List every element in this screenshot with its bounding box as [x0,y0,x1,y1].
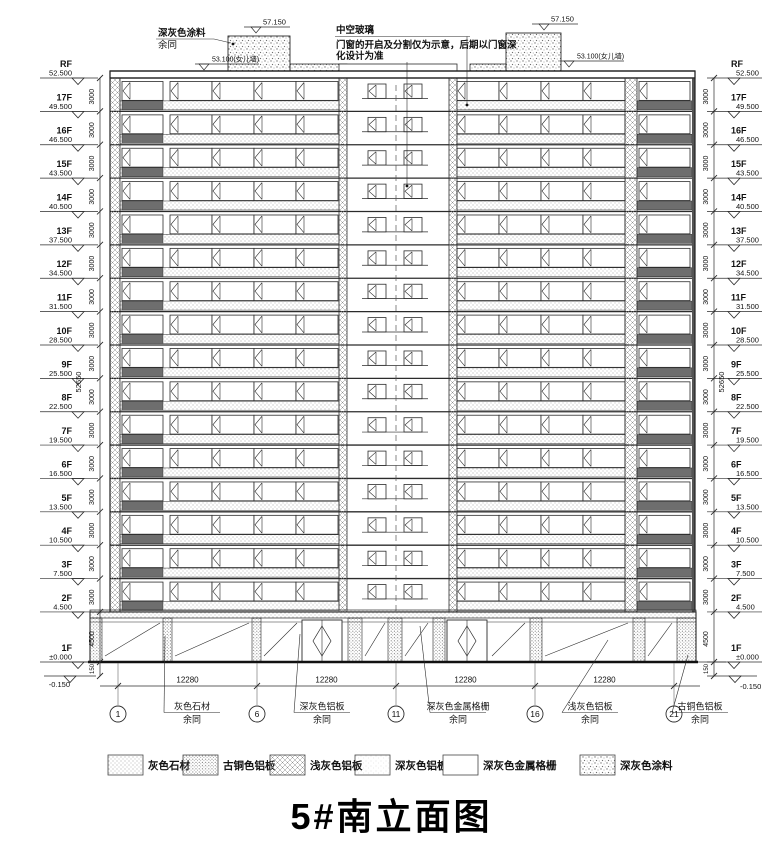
spandrel-band [457,234,625,243]
dark-sill-panel [122,134,163,143]
balcony-spandrel-dark [637,234,692,243]
material-note-line2: 余同 [449,714,467,725]
level-triangle [728,178,740,185]
materials-legend: 灰色石材古铜色铝板浅灰色铝板深灰色铝板深灰色金属格栅深灰色涂料 [108,755,673,775]
storey-dim: 3000 [703,322,710,338]
floor-elevation: 37.500 [736,235,759,244]
dark-sill-panel [122,468,163,477]
core-window [368,217,386,231]
storey-band [110,412,695,444]
storey-dim: 3000 [89,523,96,539]
floor-elevation: 4.500 [736,602,755,611]
bay-dim: 12280 [593,676,616,685]
storey-band [110,512,695,544]
core-window [368,484,386,498]
balcony-spandrel-dark [637,168,692,177]
window-cell [639,348,690,367]
bottom-dimension-line: 12280122801228012280 [100,663,700,705]
level-triangle [72,345,84,352]
floor-elevation: 7.500 [736,569,755,578]
building-facade [110,71,695,660]
storey-band [110,312,695,344]
storey-band [110,78,695,110]
floor-label: 16F [731,126,747,136]
legend-swatch-stone [108,755,143,775]
spandrel-band [457,168,625,177]
balcony-spandrel-dark [637,268,692,277]
spandrel-band [457,134,625,143]
facade-pier [339,78,347,612]
dark-sill-panel [122,501,163,510]
leader-dot [232,43,235,46]
spandrel-band [457,401,625,410]
storey-band [110,378,695,410]
window-cell [639,115,690,134]
level-triangle [72,178,84,185]
storey-dim: 3000 [89,156,96,172]
spandrel-band [457,468,625,477]
spandrel-band [457,368,625,377]
balcony-spandrel-dark [637,468,692,477]
spot-elevation-triangle [539,24,549,30]
floor-elevation: 10.500 [49,536,72,545]
below-grade-elevation: -0.150 [740,682,761,691]
storey-band [110,211,695,243]
balcony-spandrel-dark [637,101,692,110]
axis-number: 6 [255,709,260,719]
core-window [368,184,386,198]
storey-dim: 3000 [703,456,710,472]
storey-dim: 3000 [89,389,96,405]
material-note-line1: 深灰色金属格栅 [426,701,489,712]
level-triangle [72,245,84,252]
storey-dim: 3000 [703,556,710,572]
leader-dot [466,104,469,107]
total-height-dim: 52650 [74,372,83,393]
drawing-title: 5#南立面图 [0,788,783,840]
window-note-line2: 化设计为准 [336,50,384,62]
floor-elevation: 37.500 [49,235,72,244]
material-note-line1: 灰色石材 [174,701,210,712]
floor-elevation: 43.500 [736,169,759,178]
spandrel-band [457,601,625,610]
level-triangle [728,145,740,152]
floor-elevation: 49.500 [49,102,72,111]
dark-sill-panel [122,301,163,310]
level-triangle [728,245,740,252]
storey-dim: 3000 [703,122,710,138]
floor-elevation: 34.500 [49,269,72,278]
balcony-spandrel-dark [637,368,692,377]
spandrel-band [457,201,625,210]
storey-band [110,111,695,143]
floor-label: 3F [61,560,72,570]
core-window [404,484,422,498]
total-height-dim: 52650 [717,372,726,393]
level-triangle [728,612,740,619]
balcony-spandrel-dark [637,435,692,444]
glass-note-line1: 中空玻璃 [336,24,375,36]
floor-elevation: 7.500 [53,569,72,578]
floor-elevation: 25.500 [49,369,72,378]
material-note-line1: 深灰色铝板 [299,701,344,712]
storefront-pier [633,618,645,662]
floor-elevation: 22.500 [736,402,759,411]
axis-number: 11 [392,709,401,719]
leader-dot [406,185,409,188]
spot-elevation-triangle [199,64,209,70]
spot-elevation-triangle [251,27,261,33]
level-triangle [72,412,84,419]
ground-storey-dim: 4500 [89,631,96,647]
storefront-pier [677,618,696,662]
bay-dim: 12280 [176,676,199,685]
dark-sill-panel [122,234,163,243]
storefront-pier [348,618,362,662]
storey-dim: 3000 [703,289,710,305]
level-triangle [728,412,740,419]
floor-label: 7F [731,426,742,436]
balcony-spandrel-dark [637,301,692,310]
core-window [404,217,422,231]
dark-sill-panel [122,268,163,277]
storey-dim: 3000 [89,489,96,505]
dimension-column-right: 3000300030003000300030003000300030003000… [703,75,726,679]
dark-sill-panel [122,568,163,577]
level-triangle [728,278,740,285]
level-triangle [728,545,740,552]
core-window [404,551,422,565]
legend-label: 深灰色金属格栅 [483,759,557,772]
floor-label: 16F [56,126,72,136]
floor-elevation: 34.500 [736,269,759,278]
floor-elevation: 49.500 [736,102,759,111]
legend-swatch-paint [580,755,615,775]
core-window [404,318,422,332]
base-dim: 150 [90,663,96,674]
balcony-spandrel-dark [637,568,692,577]
floor-elevation: 28.500 [49,335,72,344]
level-triangle [728,662,740,669]
storey-dim: 3000 [703,356,710,372]
spandrel-band [457,501,625,510]
bay-dim: 12280 [454,676,477,685]
window-cell [639,248,690,267]
tower-elevation: 57.150 [263,18,286,27]
core-window [368,151,386,165]
floor-label: 17F [731,92,747,102]
spandrel-band [457,535,625,544]
canopy-band [90,610,696,618]
storey-dim: 3000 [703,222,710,238]
window-cell [639,215,690,234]
level-triangle [72,579,84,586]
floor-label: RF [60,59,72,69]
storey-dim: 3000 [89,189,96,205]
storey-dim: 3000 [89,589,96,605]
floor-elevation: 40.500 [49,202,72,211]
level-triangle [72,445,84,452]
storey-band [110,178,695,210]
storefront-pier [388,618,402,662]
spandrel-band [457,334,625,343]
dark-sill-panel [122,101,163,110]
level-triangle [728,478,740,485]
floor-label: 11F [731,293,747,303]
core-window [368,251,386,265]
floor-elevation: 16.500 [49,469,72,478]
storefront-pier [163,618,172,662]
floor-label: 14F [731,192,747,202]
core-window [368,518,386,532]
floor-label: 1F [731,643,742,653]
floor-elevation: 4.500 [53,602,72,611]
elevation-drawing: RF52.50017F49.50016F46.50015F43.50014F40… [0,0,783,844]
material-note-line1: 古铜色铝板 [677,701,722,712]
window-cell [639,315,690,334]
tower-elevation: 57.150 [551,15,574,24]
floor-label: 6F [731,459,742,469]
floor-label: 5F [731,493,742,503]
legend-swatch-fine [355,755,390,775]
storey-band [110,579,695,611]
core-window [404,518,422,532]
material-note-line2: 余同 [313,714,331,725]
floor-elevation: 13.500 [736,502,759,511]
core-window [404,284,422,298]
storey-dim: 3000 [89,356,96,372]
floor-label: 12F [731,259,747,269]
floor-label: 6F [61,459,72,469]
core-window [404,451,422,465]
dark-sill-panel [122,368,163,377]
level-triangle [72,78,84,85]
storey-dim: 3000 [89,322,96,338]
floor-elevation: 16.500 [736,469,759,478]
storey-dim: 3000 [89,423,96,439]
floor-label: 3F [731,560,742,570]
spandrel-band [457,435,625,444]
spandrel-band [457,568,625,577]
floor-label: 17F [56,92,72,102]
paint-note-line2: 余同 [158,39,177,51]
core-window [368,451,386,465]
floor-elevation: 40.500 [736,202,759,211]
floor-elevation: 46.500 [736,135,759,144]
floor-elevation: 28.500 [736,335,759,344]
level-triangle [72,662,84,669]
storey-dim: 3000 [703,523,710,539]
storey-dim: 3000 [89,289,96,305]
dark-sill-panel [122,601,163,610]
level-triangle [72,211,84,218]
balcony-spandrel-dark [637,334,692,343]
floor-label: 9F [731,359,742,369]
core-window [368,318,386,332]
core-window [404,351,422,365]
floor-elevation: 10.500 [736,536,759,545]
storey-band [110,345,695,377]
floor-label: 10F [731,326,747,336]
window-cell [639,515,690,534]
floor-label: 8F [731,393,742,403]
ground-storey-dim: 4500 [703,631,710,647]
core-window [368,585,386,599]
storey-dim: 3000 [703,89,710,105]
level-triangle [72,278,84,285]
floor-label: 12F [56,259,72,269]
storey-band [110,545,695,577]
level-triangle [728,378,740,385]
window-cell [639,482,690,501]
level-triangle [728,445,740,452]
storey-dim: 3000 [89,256,96,272]
ground-floor-podium [60,610,726,662]
level-triangle [728,512,740,518]
storey-dim: 3000 [703,489,710,505]
storey-band [110,145,695,177]
floor-label: RF [731,59,743,69]
storey-dim: 3000 [703,156,710,172]
facade-pier [110,78,120,612]
core-window [368,84,386,98]
dark-sill-panel [122,201,163,210]
material-note-line1: 浅灰色铝板 [567,701,612,712]
storey-dim: 3000 [703,189,710,205]
floor-label: 13F [731,226,747,236]
core-window [368,418,386,432]
below-grade-elevation: -0.150 [49,680,70,689]
storey-band [110,245,695,277]
parapet-elevation: 53.100(女儿墙) [212,55,259,64]
legend-label: 古铜色铝板 [223,759,276,772]
window-cell [639,382,690,401]
window-cell [639,182,690,201]
legend-swatch-grille [443,755,478,775]
spandrel-band [457,101,625,110]
spandrel-band [457,268,625,277]
roof-parapet-band [110,71,695,78]
bay-dim: 12280 [315,676,338,685]
floor-label: 7F [61,426,72,436]
floor-label: 4F [61,526,72,536]
floor-elevation: 31.500 [49,302,72,311]
axis-number: 1 [116,709,121,719]
level-triangle [72,312,84,319]
core-window [368,284,386,298]
storefront-pier [252,618,261,662]
level-triangle [728,78,740,85]
facade-pier [449,78,457,612]
storey-dim: 3000 [703,389,710,405]
dark-sill-panel [122,334,163,343]
floor-elevation: ±0.000 [49,653,72,662]
floor-label: 2F [61,593,72,603]
floor-elevation: 19.500 [736,436,759,445]
dark-sill-panel [122,535,163,544]
material-note-line2: 余同 [183,714,201,725]
legend-label: 深灰色涂料 [620,759,673,772]
material-note-line2: 余同 [581,714,599,725]
floor-elevation: 52.500 [736,69,759,78]
balcony-spandrel-dark [637,201,692,210]
paint-note-line1: 深灰色涂料 [158,27,206,39]
level-triangle [72,512,84,518]
core-window [368,384,386,398]
storey-dim: 3000 [89,222,96,238]
floor-elevation: 46.500 [49,135,72,144]
dark-sill-panel [122,401,163,410]
floor-elevation: 25.500 [736,369,759,378]
storey-dim: 3000 [89,89,96,105]
storey-dim: 3000 [703,423,710,439]
floor-elevation: 22.500 [49,402,72,411]
balcony-spandrel-dark [637,601,692,610]
core-window [368,351,386,365]
level-triangle [728,211,740,218]
storefront-pier [433,618,445,662]
core-window [404,418,422,432]
storefront-pier [530,618,542,662]
floor-elevation: 31.500 [736,302,759,311]
core-window [404,384,422,398]
storey-dim: 3000 [703,256,710,272]
floor-label: 2F [731,593,742,603]
base-dim: 150 [704,663,710,674]
floor-elevation: 52.500 [49,69,72,78]
floor-label: 4F [731,526,742,536]
window-cell [639,148,690,167]
level-triangle [72,111,84,118]
spot-elevation-triangle [564,61,574,67]
storey-dim: 3000 [703,589,710,605]
storey-band [110,478,695,510]
material-note-line2: 余同 [691,714,709,725]
dark-sill-panel [122,435,163,444]
window-cell [639,415,690,434]
floor-label: 9F [61,359,72,369]
level-triangle [728,111,740,118]
balcony-spandrel-dark [637,134,692,143]
core-window [368,551,386,565]
core-window [404,251,422,265]
window-cell [639,82,690,101]
storey-band [110,445,695,477]
dimension-column-left: 3000300030003000300030003000300030003000… [74,75,103,679]
axis-number: 16 [530,709,540,719]
floor-label: 14F [56,192,72,202]
window-cell [639,582,690,601]
floor-label: 10F [56,326,72,336]
floor-label: 11F [57,293,73,303]
balcony-spandrel-dark [637,535,692,544]
floor-elevation: 43.500 [49,169,72,178]
legend-swatch-cross [270,755,305,775]
level-triangle [728,345,740,352]
dark-sill-panel [122,168,163,177]
level-triangle [72,612,84,619]
balcony-spandrel-dark [637,401,692,410]
window-note-line1: 门窗的开启及分割仅为示意，后期以门窗深 [336,39,517,51]
floor-label: 8F [61,393,72,403]
core-window [404,585,422,599]
floor-label: 13F [56,226,72,236]
floor-elevation: 19.500 [49,436,72,445]
window-cell [639,549,690,568]
level-triangle [728,579,740,586]
floor-elevation: ±0.000 [736,653,759,662]
storey-dim: 3000 [89,556,96,572]
